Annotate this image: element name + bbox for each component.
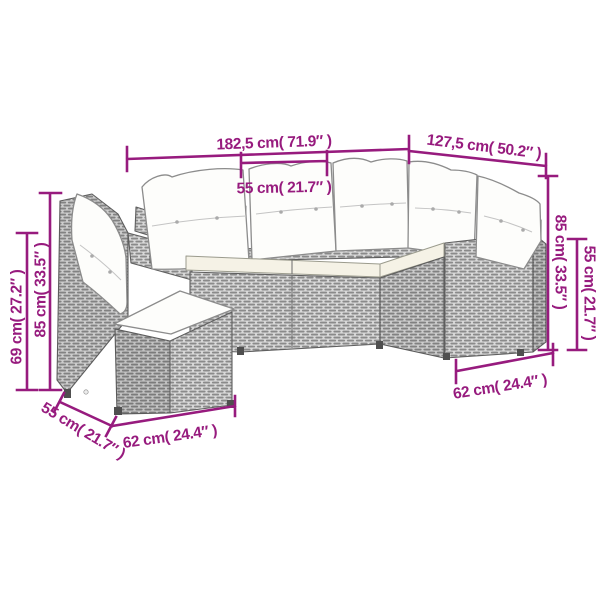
sofa-foot — [517, 349, 524, 356]
sofa-foot — [237, 347, 244, 355]
label-right-depth: 62 cm( 24.4″ ) — [452, 371, 549, 403]
label-right-height-total: 85 cm( 33.5″ ) — [552, 215, 569, 310]
pillow-button — [499, 219, 503, 223]
frame-rivet — [84, 390, 88, 394]
pillow-button — [108, 270, 112, 274]
pillow-button — [215, 216, 219, 220]
sofa-foot — [443, 353, 450, 360]
pillow-button — [431, 207, 435, 211]
sofa-set — [57, 158, 546, 415]
chaise-left-shade — [115, 329, 170, 414]
pillow-button — [457, 210, 461, 214]
pillow-button — [175, 220, 179, 224]
back-pillow-2 — [249, 161, 336, 260]
label-left-depth: 62 cm( 24.4″ ) — [122, 422, 219, 452]
sofa-diagram-canvas: 182,5 cm( 71.9″ ) 127,5 cm( 50.2″ ) 55 c… — [0, 0, 600, 600]
label-left-height-arm: 69 cm( 27.2″ ) — [9, 269, 26, 364]
sofa-foot — [376, 341, 383, 349]
sofa-foot — [114, 407, 122, 415]
label-side-width: 127,5 cm( 50.2″ ) — [426, 132, 543, 163]
pillow-button — [314, 207, 318, 211]
pillow-button — [390, 202, 394, 206]
label-total-width: 182,5 cm( 71.9″ ) — [216, 132, 332, 153]
label-seat-width: 55 cm( 21.7″ ) — [236, 179, 331, 198]
label-right-height-back: 55 cm( 21.7″ ) — [581, 246, 598, 341]
back-pillow-1 — [142, 169, 249, 270]
label-left-height-back: 85 cm( 33.5″ ) — [33, 242, 50, 337]
pillow-button — [521, 228, 525, 232]
pillow-button — [90, 254, 94, 258]
pillow-button — [279, 210, 283, 214]
product-dimension-diagram: 182,5 cm( 71.9″ ) 127,5 cm( 50.2″ ) 55 c… — [0, 0, 600, 600]
pillow-button — [360, 204, 364, 208]
